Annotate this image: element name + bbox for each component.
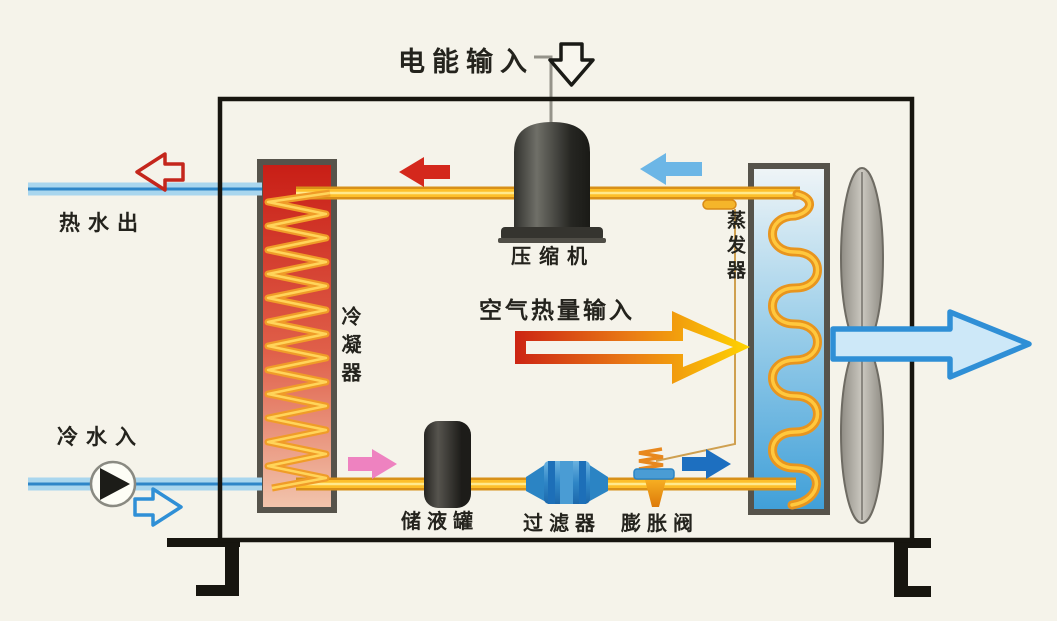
label-evaporator: 蒸发器 bbox=[722, 210, 749, 285]
label-electric-input: 电能输入 bbox=[398, 40, 534, 79]
electric-input-arrow-icon bbox=[550, 44, 593, 85]
discharge-flow-arrow-icon bbox=[399, 157, 450, 187]
label-hot-water-out: 热水出 bbox=[59, 207, 146, 237]
label-receiver-tank: 储液罐 bbox=[401, 505, 479, 534]
suction-flow-arrow-icon bbox=[640, 153, 702, 185]
label-compressor: 压缩机 bbox=[511, 240, 595, 269]
water-pump-icon bbox=[91, 462, 135, 506]
receiver-tank-icon bbox=[424, 421, 471, 508]
cold-water-in-arrow-icon bbox=[135, 489, 181, 525]
label-expansion-valve: 膨胀阀 bbox=[621, 507, 699, 536]
electric-supply-line bbox=[534, 57, 551, 128]
label-cold-water-in: 冷水入 bbox=[57, 421, 144, 451]
label-filter: 过滤器 bbox=[523, 507, 601, 536]
label-condenser: 冷凝器 bbox=[336, 306, 365, 390]
compressor-icon bbox=[498, 122, 606, 243]
liquid-flow-arrow-icon bbox=[348, 449, 397, 479]
filter-icon bbox=[526, 461, 608, 504]
heat-pump-schematic: 电能输入 热水出 冷水入 压缩机 冷凝器 蒸发器 空气热量输入 储液罐 过滤器 … bbox=[0, 0, 1057, 621]
right-foot bbox=[894, 538, 931, 597]
left-foot bbox=[167, 538, 240, 596]
label-air-heat-input: 空气热量输入 bbox=[479, 291, 635, 325]
